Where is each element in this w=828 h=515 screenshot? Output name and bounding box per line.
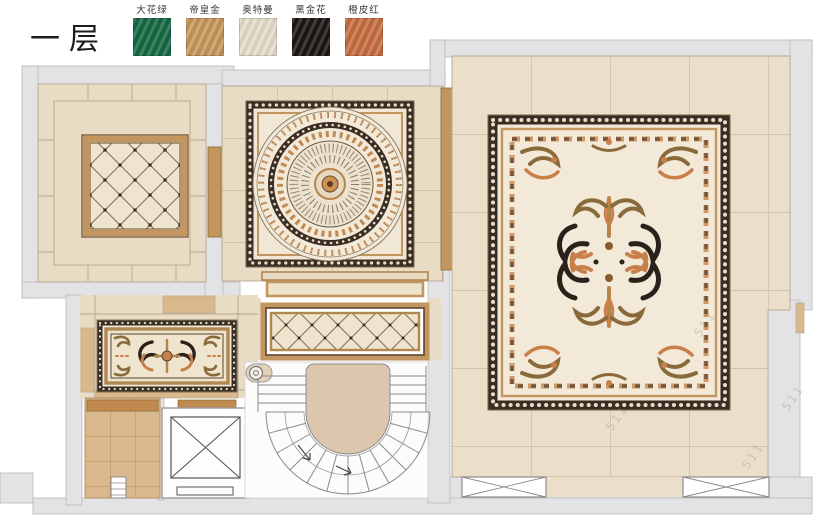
door-threshold-center-right [441,88,453,270]
hallway-rug [97,320,237,392]
left-room [38,84,221,282]
stair-landing [306,364,390,454]
door-threshold-left [208,147,221,237]
carpet-medallion [488,115,730,410]
elevator [162,400,250,498]
utility-door [111,477,126,498]
circular-medallion [253,107,407,261]
threshold-inlay [247,272,441,360]
utility-room [85,398,160,498]
hallway [80,295,258,398]
staircase [245,362,430,498]
window-x-icon [683,477,769,497]
floor-plan-page: 一层 大花绿 帝皇金 奥特曼 黑金花 橙皮红 [0,0,828,515]
floor-plan-svg: 511 511 511 511 [0,0,828,515]
diamond-inlay-left-room [82,135,188,237]
wall-pilaster [796,303,804,333]
floor-bump [546,477,683,497]
center-room [222,86,453,281]
newel-volute-icon [250,367,263,380]
window-x-icon [462,477,546,497]
right-room [452,56,804,497]
